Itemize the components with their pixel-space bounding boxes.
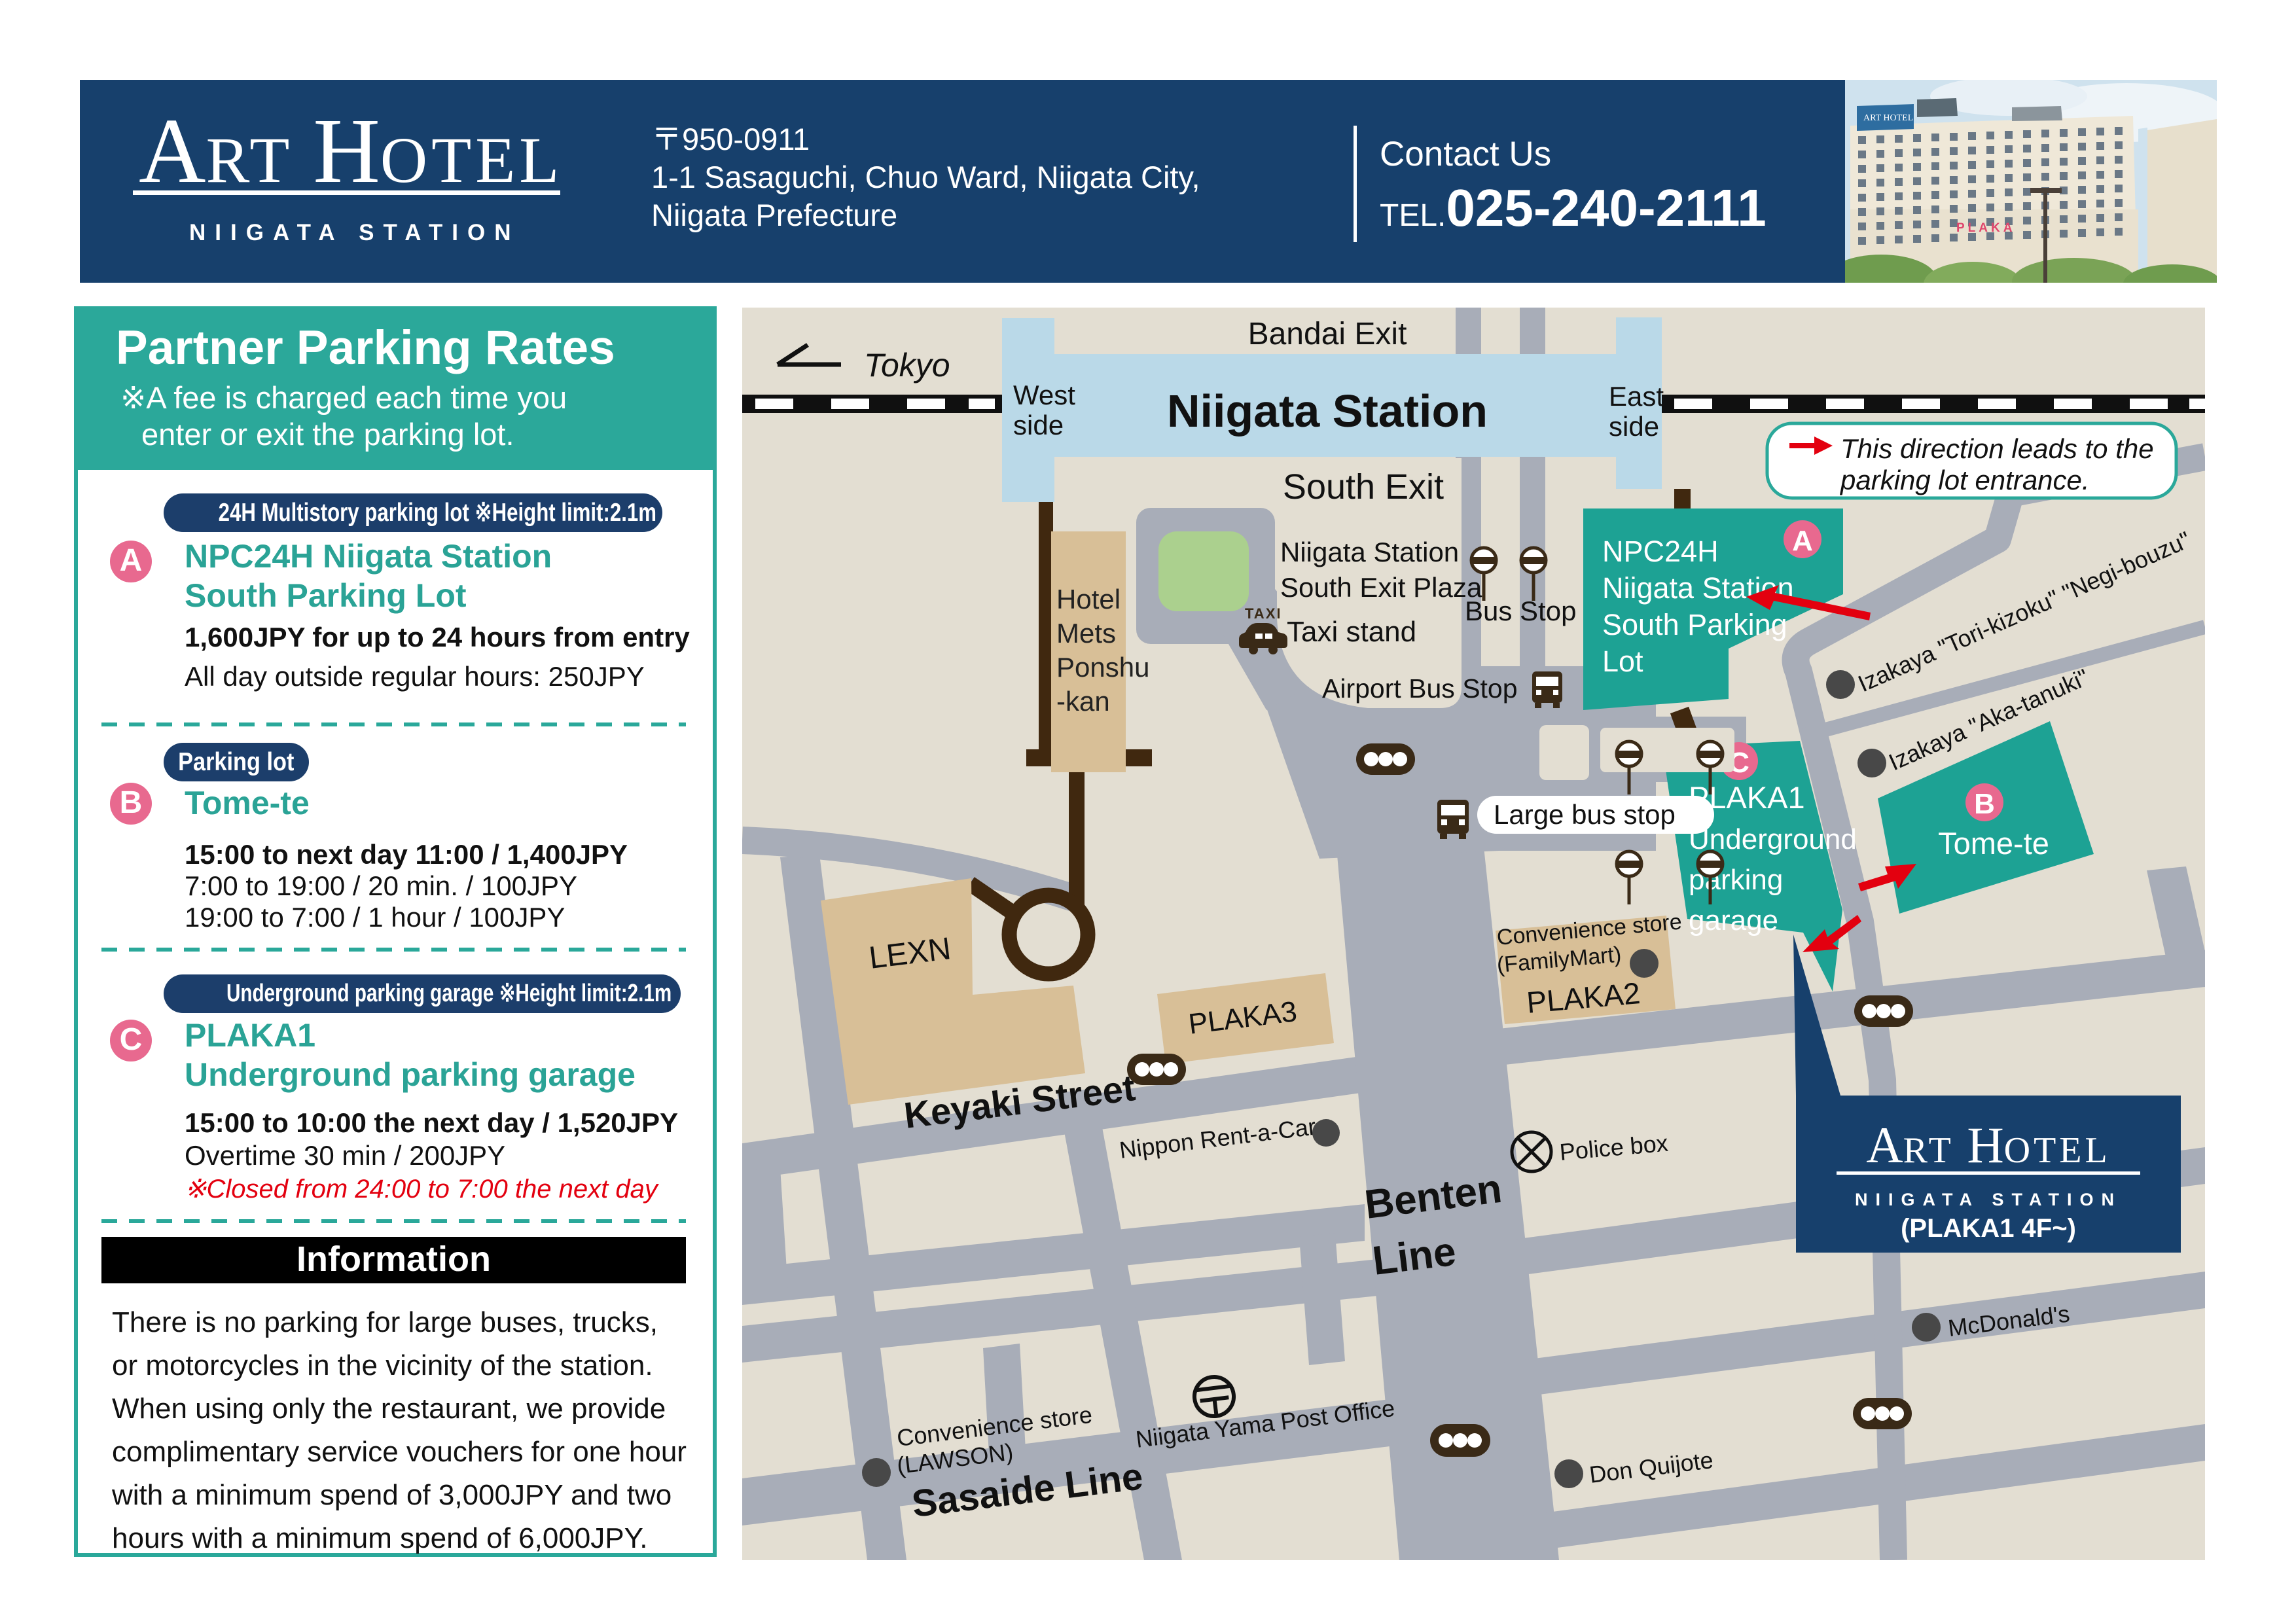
svg-text:This direction leads to the: This direction leads to the (1840, 433, 2154, 464)
svg-text:Large bus stop: Large bus stop (1494, 799, 1676, 830)
svg-text:East: East (1609, 381, 1664, 412)
svg-text:Tome-te: Tome-te (1938, 826, 2049, 861)
svg-text:Tokyo: Tokyo (864, 347, 950, 383)
svg-text:South Exit Plaza: South Exit Plaza (1280, 572, 1482, 603)
svg-text:B: B (1974, 788, 1995, 820)
svg-text:garage: garage (1689, 904, 1778, 936)
svg-text:Lot: Lot (1602, 645, 1643, 678)
svg-text:parking lot entrance.: parking lot entrance. (1839, 465, 2090, 495)
svg-text:PLAKA: PLAKA (1956, 221, 2015, 235)
svg-text:A: A (1792, 525, 1813, 557)
svg-text:ART HOTEL: ART HOTEL (1863, 113, 1913, 123)
svg-text:NIIGATA STATION: NIIGATA STATION (1855, 1190, 2122, 1209)
svg-text:Ponshu: Ponshu (1056, 652, 1149, 683)
svg-text:Niigata Station: Niigata Station (1280, 537, 1459, 567)
svg-text:Bus Stop: Bus Stop (1465, 596, 1576, 626)
svg-text:(PLAKA1 4F~): (PLAKA1 4F~) (1901, 1214, 2076, 1243)
svg-text:Airport Bus Stop: Airport Bus Stop (1322, 673, 1518, 704)
svg-text:Bandai Exit: Bandai Exit (1248, 317, 1407, 351)
svg-text:Taxi stand: Taxi stand (1287, 616, 1416, 648)
svg-text:South Exit: South Exit (1283, 467, 1444, 507)
svg-text:West: West (1013, 380, 1075, 410)
svg-text:Niigata Station: Niigata Station (1167, 385, 1488, 437)
svg-text:side: side (1609, 411, 1659, 442)
svg-text:-kan: -kan (1056, 686, 1110, 717)
svg-text:Mets: Mets (1056, 618, 1116, 649)
svg-text:NPC24H: NPC24H (1602, 535, 1719, 568)
svg-text:side: side (1013, 410, 1064, 440)
svg-text:South Parking: South Parking (1602, 608, 1787, 641)
svg-text:Hotel: Hotel (1056, 584, 1121, 615)
svg-text:TAXI: TAXI (1245, 605, 1282, 622)
